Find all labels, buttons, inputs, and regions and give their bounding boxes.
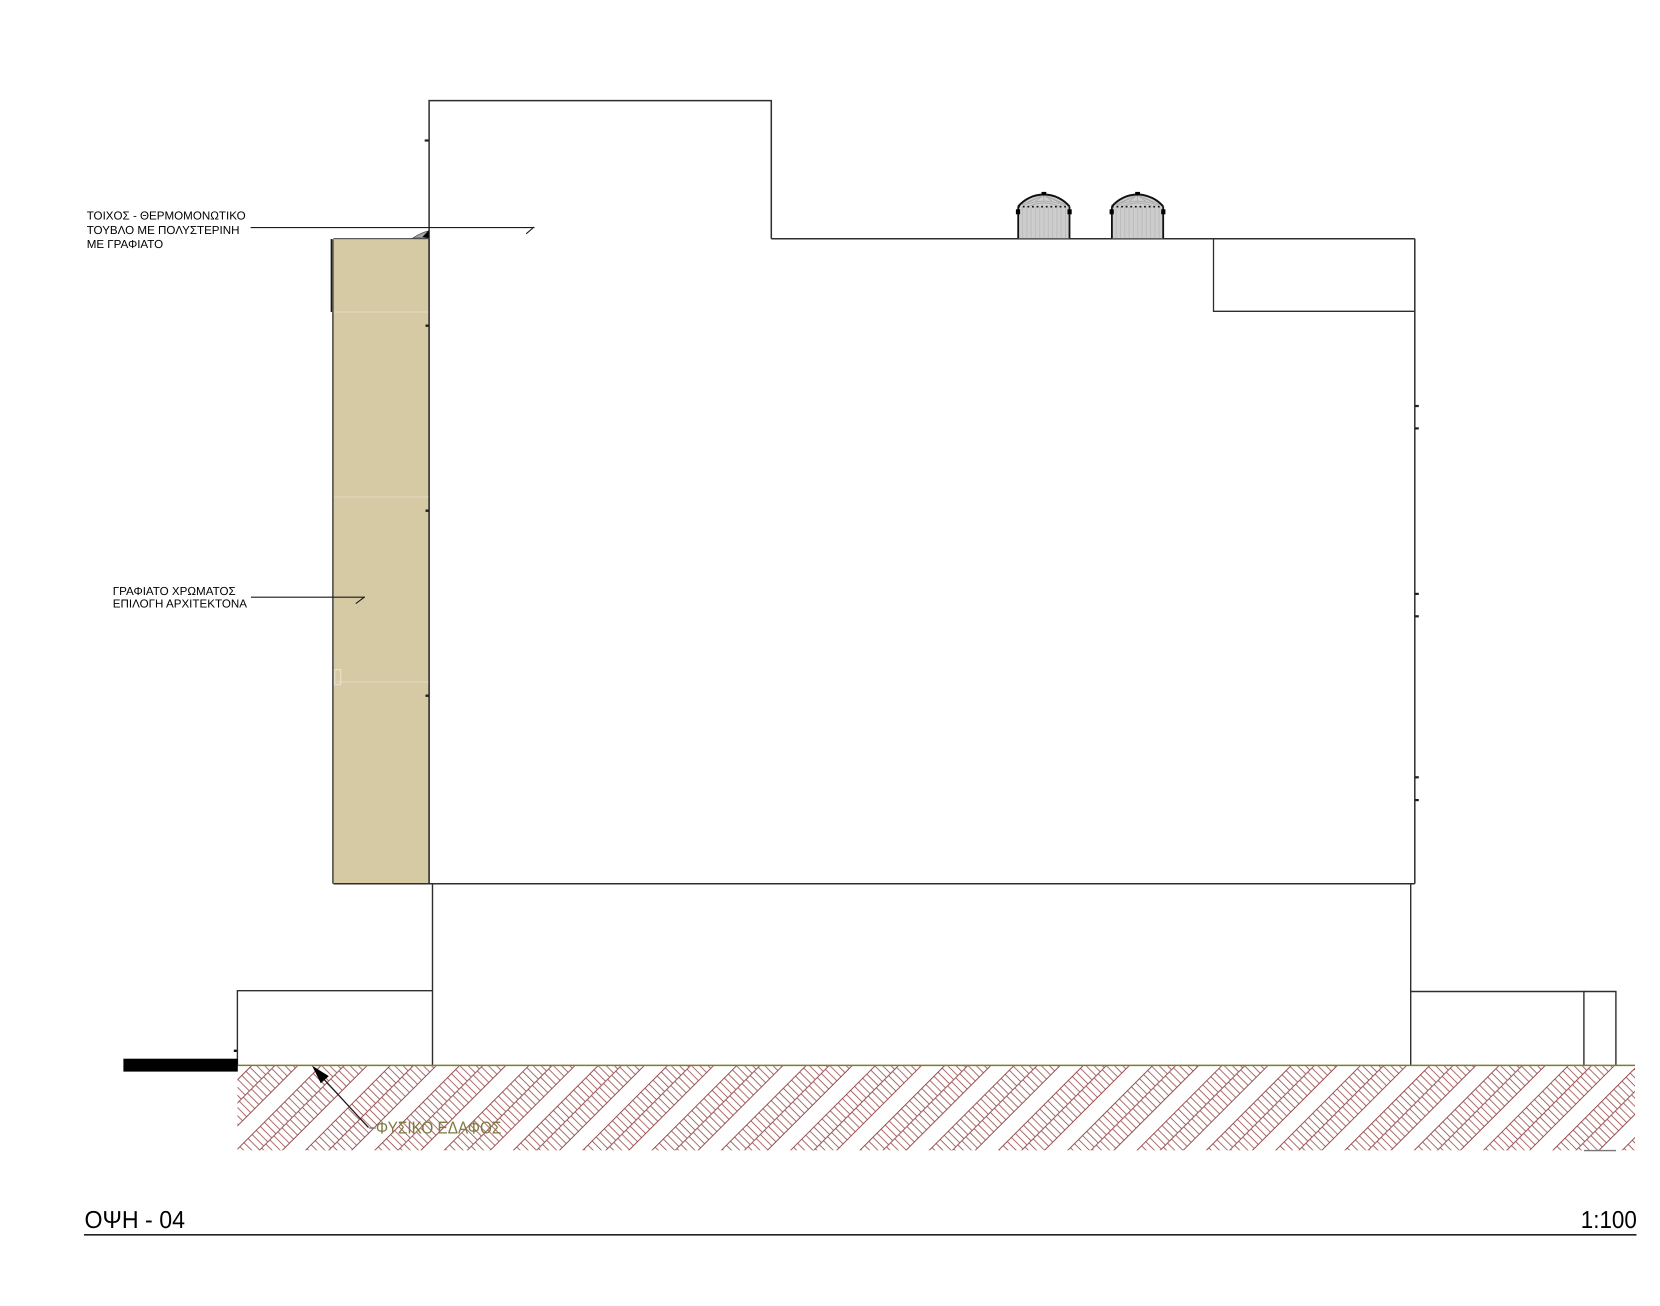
svg-text:ΟΨΗ - 04: ΟΨΗ - 04 [85, 1207, 186, 1234]
svg-text:ΜΕ ΓΡΑΦΙΑΤΟ: ΜΕ ΓΡΑΦΙΑΤΟ [87, 238, 164, 251]
svg-text:ΦΥΣΙΚΟ ΕΔΑΦΟΣ: ΦΥΣΙΚΟ ΕΔΑΦΟΣ [376, 1118, 502, 1138]
svg-text:ΕΠΙΛΟΓΗ ΑΡΧΙΤΕΚΤΟΝΑ: ΕΠΙΛΟΓΗ ΑΡΧΙΤΕΚΤΟΝΑ [113, 597, 247, 610]
svg-text:1:100: 1:100 [1581, 1207, 1637, 1234]
svg-text:ΤΟΙΧΟΣ - ΘΕΡΜΟΜΟΝΩΤΙΚΟ: ΤΟΙΧΟΣ - ΘΕΡΜΟΜΟΝΩΤΙΚΟ [87, 209, 246, 222]
svg-text:ΓΡΑΦΙΑΤΟ ΧΡΩΜΑΤΟΣ: ΓΡΑΦΙΑΤΟ ΧΡΩΜΑΤΟΣ [113, 585, 236, 598]
svg-text:ΤΟΥΒΛΟ ΜΕ ΠΟΛΥΣΤΕΡΙΝΗ: ΤΟΥΒΛΟ ΜΕ ΠΟΛΥΣΤΕΡΙΝΗ [87, 224, 240, 237]
